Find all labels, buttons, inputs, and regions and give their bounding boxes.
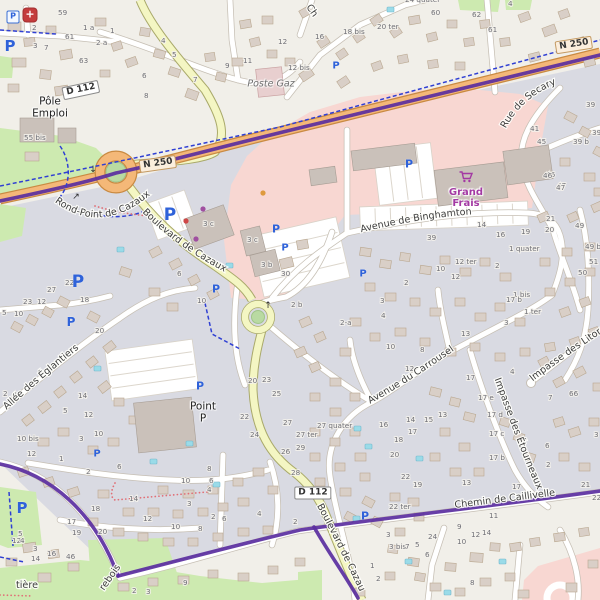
- house-number: 17 b: [506, 295, 522, 304]
- house-number: 2: [293, 517, 298, 526]
- house-number: 7: [405, 542, 410, 551]
- house-number: 27 ter: [296, 430, 318, 439]
- house-number: 61: [488, 25, 497, 34]
- house-number: 4: [161, 36, 166, 45]
- house-number: 12: [37, 297, 46, 306]
- house-number: 6: [222, 514, 227, 523]
- house-number: 25: [272, 389, 281, 398]
- house-number: 26: [281, 447, 291, 456]
- house-number: 18: [394, 435, 404, 444]
- house-number: 2: [376, 574, 381, 583]
- house-number: 19: [521, 227, 531, 236]
- house-number: 11: [489, 511, 498, 520]
- house-number: 1 a: [83, 23, 94, 32]
- house-number: 3: [504, 318, 509, 327]
- house-number: 7: [44, 43, 49, 52]
- house-number: 3: [33, 41, 38, 50]
- house-number: 4: [510, 367, 515, 376]
- house-number: 16: [496, 230, 506, 239]
- house-number: 9: [225, 61, 230, 70]
- house-number: 61: [65, 32, 74, 41]
- house-number: 17 c: [489, 429, 504, 438]
- house-number: 17 b: [489, 453, 505, 462]
- house-number: 46: [66, 552, 76, 561]
- house-number: 4: [207, 485, 212, 494]
- house-number: 39: [586, 100, 596, 109]
- house-number: 16: [47, 549, 57, 558]
- house-number: 1: [110, 26, 115, 35]
- house-number: 55 bis: [24, 133, 46, 142]
- house-number: 17: [466, 373, 475, 382]
- house-number: 8: [420, 345, 425, 354]
- house-number: 19: [72, 528, 82, 537]
- house-number: 8: [470, 578, 475, 587]
- house-number: 20: [545, 225, 555, 234]
- house-number: 12: [471, 530, 480, 539]
- house-number: 51: [589, 257, 598, 266]
- house-number: 19: [413, 480, 423, 489]
- house-number: 3: [594, 430, 599, 439]
- house-number: 3 c: [203, 219, 214, 228]
- house-number: 20: [98, 527, 108, 536]
- house-number: 6: [117, 462, 122, 471]
- house-number: 22: [401, 472, 410, 481]
- house-number: 17: [67, 517, 76, 526]
- house-number: 11: [243, 56, 252, 65]
- house-number: 22: [240, 412, 249, 421]
- house-number: 24 quater: [405, 0, 440, 4]
- house-number: 5: [63, 406, 68, 415]
- house-number: 14: [482, 528, 492, 537]
- house-number: 2: [404, 278, 409, 287]
- house-number: 2: [3, 389, 8, 398]
- house-number: 24: [428, 532, 438, 541]
- house-number: 8: [198, 524, 203, 533]
- house-number: 4: [508, 0, 513, 8]
- house-number: 5: [2, 308, 7, 317]
- house-number: 2-a: [340, 318, 352, 327]
- house-number: 18: [80, 295, 90, 304]
- house-number: 12: [451, 272, 460, 281]
- house-number: 24: [250, 430, 260, 439]
- house-number: 6: [209, 476, 214, 485]
- house-number: 20: [248, 376, 258, 385]
- house-number: 10: [171, 522, 181, 531]
- house-number: 12: [278, 37, 287, 46]
- house-number: 14: [129, 494, 139, 503]
- house-number: 22 ter: [389, 502, 411, 511]
- house-number: 4: [20, 536, 25, 545]
- house-number: 18: [91, 504, 101, 513]
- house-number: 8: [144, 91, 149, 100]
- house-number: 16: [315, 32, 325, 41]
- house-number: 6: [545, 441, 550, 450]
- house-number: 1 ter: [524, 307, 541, 316]
- house-number: 1 quater: [509, 244, 540, 253]
- poi-dot: [183, 218, 188, 223]
- house-number: 3: [380, 296, 385, 305]
- house-number: 49 bis: [585, 242, 600, 251]
- house-number: 23: [23, 297, 32, 306]
- house-number: 10: [181, 476, 191, 485]
- map-base-layer: 5961632371 a2 a14579111212 bis6855 bis24…: [0, 0, 600, 600]
- house-number: 16: [379, 420, 389, 429]
- house-number: 17 e: [478, 393, 494, 402]
- house-number: 2 a: [96, 38, 107, 47]
- house-number: 3: [33, 544, 38, 553]
- house-number: 28: [291, 468, 301, 477]
- house-number: 2: [132, 586, 137, 595]
- house-number: 10: [457, 537, 467, 546]
- house-number: 2: [546, 460, 551, 469]
- house-number: 10: [197, 296, 207, 305]
- house-number: 1: [370, 561, 375, 570]
- house-number: 14: [406, 415, 416, 424]
- house-number: 63: [79, 56, 88, 65]
- house-number: 13: [462, 478, 471, 487]
- house-number: 12: [143, 514, 152, 523]
- house-number: 10: [14, 309, 24, 318]
- house-number: 22: [592, 493, 600, 502]
- house-number: 3: [79, 434, 84, 443]
- poi-dot: [193, 236, 198, 241]
- house-number: 21: [546, 214, 555, 223]
- house-number: 23: [262, 375, 271, 384]
- house-number: 22: [65, 278, 74, 287]
- house-number: 15: [424, 415, 433, 424]
- house-number: 2 b: [291, 300, 303, 309]
- house-number: 30: [281, 269, 291, 278]
- house-number: 27: [47, 285, 56, 294]
- house-number: 5: [415, 540, 420, 549]
- house-number: 2: [211, 512, 216, 521]
- house-number: 9: [183, 578, 188, 587]
- house-number: 12 bis: [288, 63, 310, 72]
- house-number: 14: [31, 554, 41, 563]
- house-number: 17: [408, 427, 417, 436]
- house-number: 46: [543, 171, 553, 180]
- house-number: 39 b: [573, 137, 589, 146]
- house-number: 10: [94, 429, 104, 438]
- house-number: 8: [207, 464, 212, 473]
- house-number: 21: [581, 480, 590, 489]
- house-number: 66: [569, 389, 579, 398]
- house-number: 14: [78, 391, 88, 400]
- house-number: 3 bis: [389, 542, 406, 551]
- house-number: 20: [95, 326, 105, 335]
- house-number: 3: [386, 530, 391, 539]
- house-number: 10: [436, 264, 446, 273]
- house-number: 1: [59, 454, 64, 463]
- house-number: 20 ter: [377, 22, 399, 31]
- house-number: 17 d: [487, 410, 503, 419]
- house-number: 17: [512, 482, 521, 491]
- house-number: 49: [575, 221, 585, 230]
- house-number: 3 b: [261, 260, 273, 269]
- house-number: 18 bis: [343, 27, 365, 36]
- house-number: 39 a: [592, 128, 600, 137]
- house-number: 3 c: [247, 235, 258, 244]
- house-number: 45: [537, 137, 546, 146]
- house-number: 13: [438, 410, 447, 419]
- house-number: 6: [177, 269, 182, 278]
- house-number: 3: [187, 499, 192, 508]
- house-number: 2: [495, 261, 500, 270]
- house-number: 7: [548, 393, 553, 402]
- street-label-fragment-tiere: tière: [16, 579, 38, 591]
- house-number: 27 quater: [317, 421, 352, 430]
- poi-dot: [260, 190, 265, 195]
- house-number: 3: [146, 587, 151, 596]
- house-number: 27: [283, 418, 292, 427]
- house-number: 12 ter: [455, 257, 477, 266]
- house-number: 50: [578, 268, 588, 277]
- house-number: 47: [556, 183, 565, 192]
- house-number: 12: [27, 449, 36, 458]
- house-number: 2: [32, 23, 37, 32]
- house-number: 13: [461, 329, 470, 338]
- map-canvas[interactable]: 5961632371 a2 a14579111212 bis6855 bis24…: [0, 0, 600, 600]
- house-number: 9: [457, 522, 462, 531]
- house-number: 4: [381, 311, 386, 320]
- house-number: 2: [86, 467, 91, 476]
- house-number: 59: [58, 8, 68, 17]
- house-number: 62: [472, 10, 481, 19]
- house-number: 41: [530, 124, 539, 133]
- house-number: 14: [477, 220, 487, 229]
- house-number: 29: [296, 443, 306, 452]
- house-number: 5: [172, 50, 177, 59]
- poi-dot: [200, 206, 205, 211]
- house-number: 10 bis: [17, 434, 39, 443]
- house-number: 39: [427, 233, 437, 242]
- house-number: 10: [386, 342, 396, 351]
- house-number: 6: [142, 71, 147, 80]
- house-number: 20: [390, 450, 400, 459]
- house-number: 4: [257, 509, 262, 518]
- house-number: 6: [425, 550, 430, 559]
- house-number: 60: [431, 8, 441, 17]
- house-number: 7: [193, 75, 198, 84]
- house-number: 12: [84, 410, 93, 419]
